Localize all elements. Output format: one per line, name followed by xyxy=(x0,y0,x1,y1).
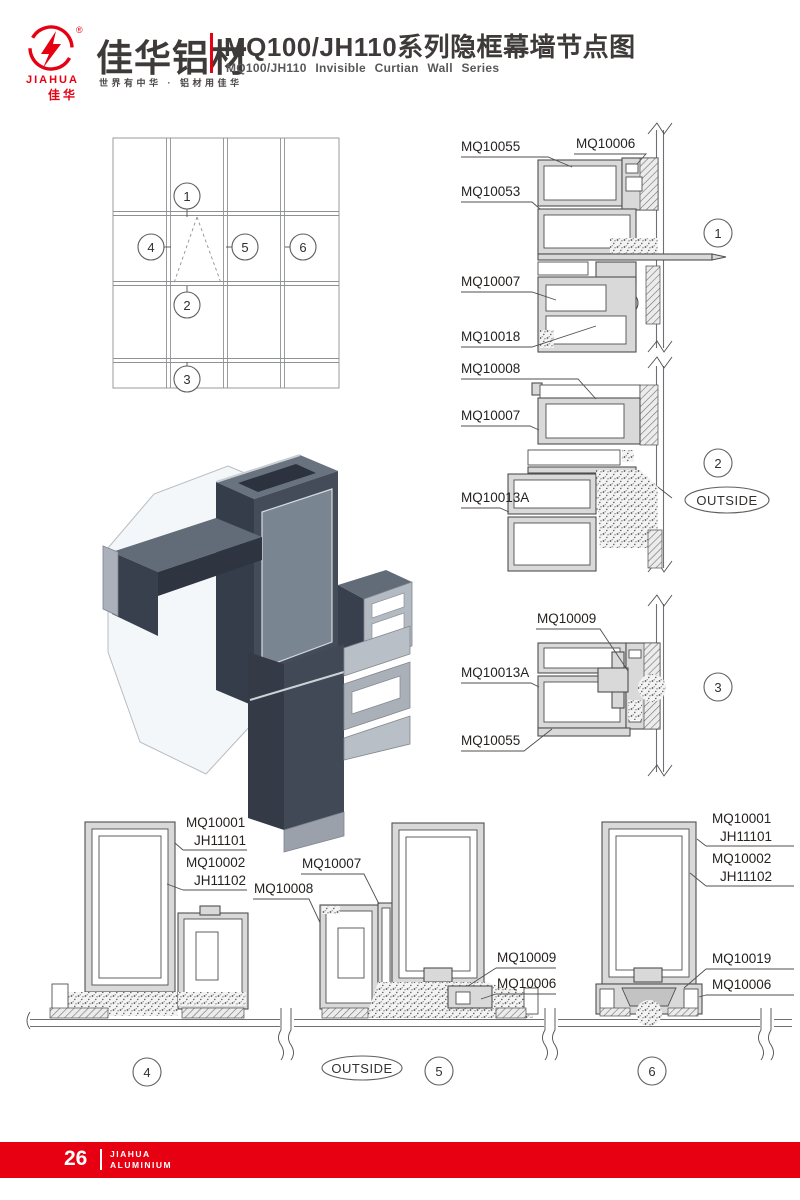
elevation-mullions xyxy=(113,138,339,388)
svg-text:1: 1 xyxy=(183,189,190,204)
render-3d-corner-assembly xyxy=(103,455,412,852)
page-number: 26 xyxy=(64,1147,87,1171)
label-d6-mq10002: MQ10002 xyxy=(712,851,771,866)
svg-text:5: 5 xyxy=(241,240,248,255)
detail-1-callout: 1 xyxy=(704,219,732,247)
outside-label-right: OUTSIDE xyxy=(685,487,769,513)
svg-text:6: 6 xyxy=(648,1064,655,1079)
detail-5-section: MQ10007 MQ10009 MQ10006 OUTSIDE 5 xyxy=(301,823,556,1085)
label-d5-mq10009: MQ10009 xyxy=(497,950,556,965)
detail-4-callout: 4 xyxy=(133,1058,161,1086)
label-d4-jh11102: JH11102 xyxy=(194,873,246,888)
detail-1-section: MQ10055 MQ10006 MQ10053 MQ10007 MQ10018 … xyxy=(461,136,732,352)
label-d3-mq10009: MQ10009 xyxy=(537,611,596,626)
label-d1-mq10055: MQ10055 xyxy=(461,139,520,154)
elevation-grid: 1 4 5 6 2 xyxy=(113,138,339,392)
svg-text:3: 3 xyxy=(183,372,190,387)
svg-text:4: 4 xyxy=(147,240,154,255)
label-d6-mq10019: MQ10019 xyxy=(712,951,771,966)
svg-text:2: 2 xyxy=(714,456,721,471)
svg-text:OUTSIDE: OUTSIDE xyxy=(331,1061,392,1076)
catalog-page: ® JIAHUA 佳华 佳华铝材 世界有中华 · 铝材用佳华 MQ100/JH1… xyxy=(0,0,800,1200)
footer-divider xyxy=(100,1149,102,1170)
elevation-callout-2: 2 xyxy=(174,286,200,318)
label-d3-mq10055: MQ10055 xyxy=(461,733,520,748)
detail-5-callout: 5 xyxy=(425,1057,453,1085)
label-d1-mq10053: MQ10053 xyxy=(461,184,520,199)
svg-text:5: 5 xyxy=(435,1064,442,1079)
elevation-callout-3: 3 xyxy=(174,362,200,392)
svg-text:1: 1 xyxy=(714,226,721,241)
label-d2-mq10013a: MQ10013A xyxy=(461,490,529,505)
label-d1-mq10018: MQ10018 xyxy=(461,329,520,344)
footer-brand-line2: ALUMINIUM xyxy=(110,1160,172,1171)
detail-6-callout: 6 xyxy=(638,1057,666,1085)
detail-4-section: MQ10001 JH11101 MQ10002 JH11102 MQ10008 … xyxy=(50,815,323,1086)
elevation-callout-6: 6 xyxy=(285,234,316,260)
svg-text:OUTSIDE: OUTSIDE xyxy=(696,493,757,508)
label-d2-mq10008: MQ10008 xyxy=(461,361,520,376)
label-d3-mq10013a: MQ10013A xyxy=(461,665,529,680)
drawing-sheet: 1 4 5 6 2 xyxy=(0,0,800,1200)
label-d5-mq10006: MQ10006 xyxy=(497,976,556,991)
label-d1-mq10006: MQ10006 xyxy=(576,136,635,151)
label-d4-mq10001: MQ10001 xyxy=(186,815,245,830)
label-d4-mq10008: MQ10008 xyxy=(254,881,313,896)
label-d6-mq10006: MQ10006 xyxy=(712,977,771,992)
label-d1-mq10007: MQ10007 xyxy=(461,274,520,289)
footer-brand-line1: JIAHUA xyxy=(110,1149,172,1160)
label-d4-jh11101: JH11101 xyxy=(194,833,246,848)
detail-6-section: MQ10001 JH11101 MQ10002 JH11102 MQ10019 … xyxy=(596,811,794,1085)
footer-brand: JIAHUA ALUMINIUM xyxy=(110,1149,172,1170)
detail-3-section: MQ10009 MQ10013A MQ10055 3 xyxy=(461,611,732,751)
label-d4-mq10002: MQ10002 xyxy=(186,855,245,870)
label-d6-jh11102: JH11102 xyxy=(720,869,772,884)
detail-3-callout: 3 xyxy=(704,673,732,701)
svg-text:4: 4 xyxy=(143,1065,150,1080)
page-footer: 26 JIAHUA ALUMINIUM xyxy=(0,1142,800,1178)
svg-text:6: 6 xyxy=(299,240,306,255)
svg-text:2: 2 xyxy=(183,298,190,313)
elevation-callout-5: 5 xyxy=(226,234,258,260)
detail-2-callout: 2 xyxy=(704,449,732,477)
svg-text:3: 3 xyxy=(714,680,721,695)
label-d6-mq10001: MQ10001 xyxy=(712,811,771,826)
vent-symbol xyxy=(174,217,197,283)
label-d5-mq10007: MQ10007 xyxy=(302,856,361,871)
outside-label-bottom: OUTSIDE xyxy=(322,1056,402,1080)
label-d6-jh11101: JH11101 xyxy=(720,829,772,844)
detail-2-section: MQ10008 MQ10007 MQ10013A 2 OUTSIDE xyxy=(461,361,769,571)
label-d2-mq10007: MQ10007 xyxy=(461,408,520,423)
